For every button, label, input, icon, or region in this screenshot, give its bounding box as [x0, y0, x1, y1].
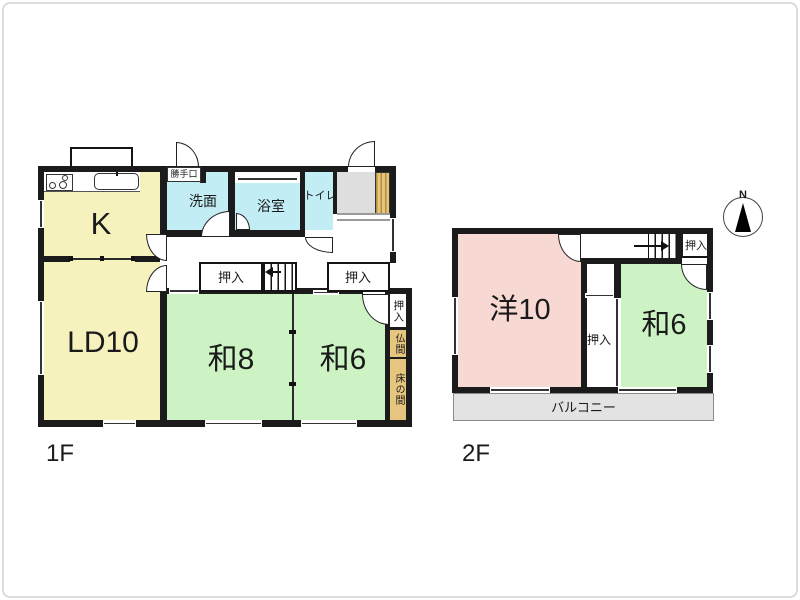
window-marker [490, 387, 550, 393]
divider-tick [289, 330, 296, 334]
wall [44, 256, 70, 262]
tokonoma-label: 床の間 [391, 361, 405, 418]
wall [406, 288, 412, 427]
window-marker [237, 176, 298, 182]
bay-window [70, 147, 133, 168]
stairs-direction-arrow [268, 271, 281, 273]
room-label-japanese-6-2f: 和6 [624, 307, 704, 343]
window-marker [103, 420, 136, 427]
stove-burner-icon [62, 175, 68, 181]
closet-label: 押入 [584, 332, 614, 348]
wall [390, 357, 406, 359]
compass-north-label: N [735, 188, 751, 202]
closet-label: 押入 [336, 268, 380, 286]
room-label-japanese-8: 和8 [191, 342, 271, 378]
room-label-bathroom: 浴室 [248, 197, 294, 215]
entrance-area [337, 172, 375, 214]
sliding-door-marker [615, 298, 619, 387]
window-marker [390, 218, 396, 252]
window-marker [707, 292, 713, 320]
room-label-japanese-6-1f: 和6 [303, 342, 383, 378]
sliding-door-marker [169, 288, 199, 294]
wall [38, 166, 396, 172]
balcony-label: バルコニー [453, 398, 714, 416]
track-tick [69, 256, 73, 261]
room-label-living-dining: LD10 [53, 325, 153, 361]
entrance-step-line [337, 213, 390, 215]
wall [390, 327, 406, 330]
room-label-western-10: 洋10 [470, 292, 570, 328]
window-marker [38, 301, 44, 375]
room-label-washroom: 洗面 [180, 192, 226, 210]
room-label-toilet: トイレ [304, 189, 336, 204]
window-marker [205, 420, 262, 427]
wall [587, 258, 682, 264]
floor-plan-canvas: K LD10 和8 和6 洗面 浴室 トイレ 勝手口 押入 押入 押入 仏間 床… [0, 0, 800, 600]
window-marker [452, 297, 458, 355]
closet-label: 押入 [684, 238, 708, 254]
closet-label: 押入 [209, 268, 253, 286]
window-marker [707, 345, 713, 373]
track-tick [131, 256, 135, 261]
window-marker [38, 200, 44, 228]
wall [614, 258, 621, 298]
wall [167, 230, 202, 237]
closet-label: 押入 [391, 296, 405, 326]
floor1-label: 1F [46, 440, 94, 468]
track-tick [100, 256, 104, 261]
stairs-direction-arrow [634, 245, 666, 247]
fusuma-divider [292, 294, 294, 420]
compass-needle-icon [735, 203, 751, 232]
window-marker [301, 420, 357, 427]
entrance-step-line [337, 219, 390, 221]
window-marker [618, 387, 677, 393]
divider-tick [289, 382, 296, 386]
door-opening [305, 230, 333, 237]
shoe-cabinet-hatch-icon [375, 172, 390, 214]
stove-burner-icon [59, 181, 67, 189]
room-label-kitchen: K [76, 205, 126, 241]
floor2-label: 2F [462, 440, 510, 468]
wall [160, 172, 167, 234]
wall [230, 230, 305, 237]
wall [581, 258, 587, 387]
butsuma-label: 仏間 [391, 331, 405, 356]
sliding-door-marker [585, 293, 614, 298]
stove-burner-icon [49, 182, 56, 189]
room-label-back-door: 勝手口 [167, 167, 201, 182]
wall [160, 292, 167, 427]
